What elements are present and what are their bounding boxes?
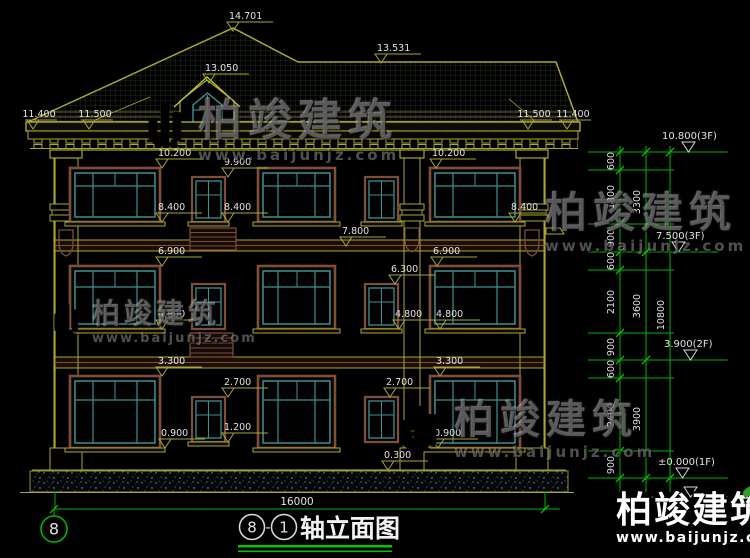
title-text: 轴立面图 <box>300 514 400 543</box>
window-2f-left <box>65 266 165 333</box>
elevation-label: 3.300 <box>436 356 463 367</box>
title-underline <box>238 551 392 553</box>
floor-level-roof: 10.800(3F) <box>598 131 728 152</box>
window-1f-left <box>65 376 165 452</box>
window-3f-right <box>425 168 525 226</box>
elevation-label: 8.400 <box>511 202 538 213</box>
floor-level-2f: 3.900(2F) <box>600 339 728 360</box>
dimension-label: 3600 <box>632 294 643 318</box>
elevation-label: 6.300 <box>391 264 418 275</box>
window-2f-small-left <box>192 284 225 329</box>
dimension-label: 900 <box>606 338 617 356</box>
level-label: 7.500(3F) <box>656 231 705 242</box>
elevation-label: 0.900 <box>161 428 188 439</box>
dimension-label: 1800 <box>606 185 617 209</box>
title-axis-a: 8 <box>247 519 257 537</box>
overall-dimension: 16000 <box>50 492 560 516</box>
axis-bubble-label: 8 <box>49 520 59 539</box>
dimension-label: 3900 <box>632 407 643 431</box>
elevation-label: 4.800 <box>395 309 422 320</box>
dimension-label: 600 <box>606 252 617 270</box>
axis-bubble-8: 8 <box>41 516 67 542</box>
elevation-label: 3.300 <box>158 356 185 367</box>
louver-2f <box>190 333 233 357</box>
title-underline <box>238 545 392 548</box>
window-3f-mid <box>253 168 340 226</box>
louver-3f <box>190 228 236 250</box>
title-separator: - <box>265 520 270 536</box>
elevation-label: 6.900 <box>158 246 185 257</box>
elevation-label: 11.500 <box>78 109 111 120</box>
dimension-label: 600 <box>606 360 617 378</box>
elevation-label: 6.900 <box>433 246 460 257</box>
level-label: 3.900(2F) <box>664 339 713 350</box>
elevation-label: 0.900 <box>434 428 461 439</box>
window-1f-mid <box>253 376 340 452</box>
dimension-label: 2100 <box>606 290 617 314</box>
level-label: ±0.000(1F) <box>658 457 715 468</box>
elevation-label: 2.700 <box>386 377 413 388</box>
dimension-label: 900 <box>606 456 617 474</box>
elevation-label: 8.400 <box>224 202 251 213</box>
dimension-label: 900 <box>606 229 617 247</box>
level-label: 10.800(3F) <box>662 131 717 142</box>
elevation-label: 1.200 <box>224 422 251 433</box>
elevation-label: 0.300 <box>384 450 411 461</box>
dimension-label: 3300 <box>632 190 643 214</box>
title-block: 8 - 1 轴立面图 <box>238 514 400 552</box>
dimension-label: 10800 <box>656 300 667 330</box>
title-axis-b: 1 <box>279 519 289 537</box>
window-1f-right <box>425 376 525 452</box>
window-2f-mid <box>253 266 340 333</box>
elevation-label: 4.800 <box>158 309 185 320</box>
elevation-label: 10.200 <box>158 148 191 159</box>
floor-level-1f: ±0.000(1F) <box>600 457 728 478</box>
floor-band-2f <box>55 357 545 368</box>
elevation-label: 2.700 <box>224 377 251 388</box>
brand-url: www.baijunjz.com <box>616 530 750 546</box>
elevation-label: 7.800 <box>342 226 369 237</box>
brand-name: 柏竣建筑 <box>616 493 750 529</box>
elevation-label: 13.531 <box>377 43 410 54</box>
roof <box>28 28 578 122</box>
window-3f-left <box>65 168 165 226</box>
elevation-label: 10.200 <box>432 148 465 159</box>
window-3f-small-right <box>361 177 402 226</box>
floor-level-3f: 7.500(3F) <box>630 231 718 252</box>
vent-grille <box>403 431 415 447</box>
elevation-label: 11.400 <box>556 109 589 120</box>
dimension-label: 600 <box>606 152 617 170</box>
elevation-label: 8.400 <box>158 202 185 213</box>
dimension-chain: 600 1800 900 600 2100 900 600 2400 900 3… <box>588 146 674 492</box>
scupper-spout <box>546 228 564 234</box>
brand-logo-icon <box>549 489 609 549</box>
elevation-label: 14.701 <box>229 11 262 22</box>
elevation-label: 4.800 <box>436 309 463 320</box>
elevation-label: 13.050 <box>205 63 238 74</box>
elevation-label: 11.500 <box>517 109 550 120</box>
elevation-marker-13531: 13.531 <box>375 43 421 63</box>
window-3f-small-left <box>188 177 229 226</box>
dimension-label: 2400 <box>606 403 617 427</box>
window-2f-right <box>425 266 525 333</box>
elevation-drawing-page: 14.701 13.531 13.050 11.400 11.500 11.50… <box>0 0 750 558</box>
overall-dimension-label: 16000 <box>280 496 313 508</box>
elevation-label: 9.900 <box>224 157 251 168</box>
floor-band-3f <box>55 240 545 251</box>
plinth <box>20 470 574 493</box>
window-1f-small-right <box>365 397 398 442</box>
elevation-label: 11.400 <box>22 109 55 120</box>
brand-footer: 柏竣建筑 www.baijunjz.com <box>549 489 750 549</box>
cornice <box>26 122 580 149</box>
elevation-svg: 14.701 13.531 13.050 11.400 11.500 11.50… <box>0 0 750 558</box>
